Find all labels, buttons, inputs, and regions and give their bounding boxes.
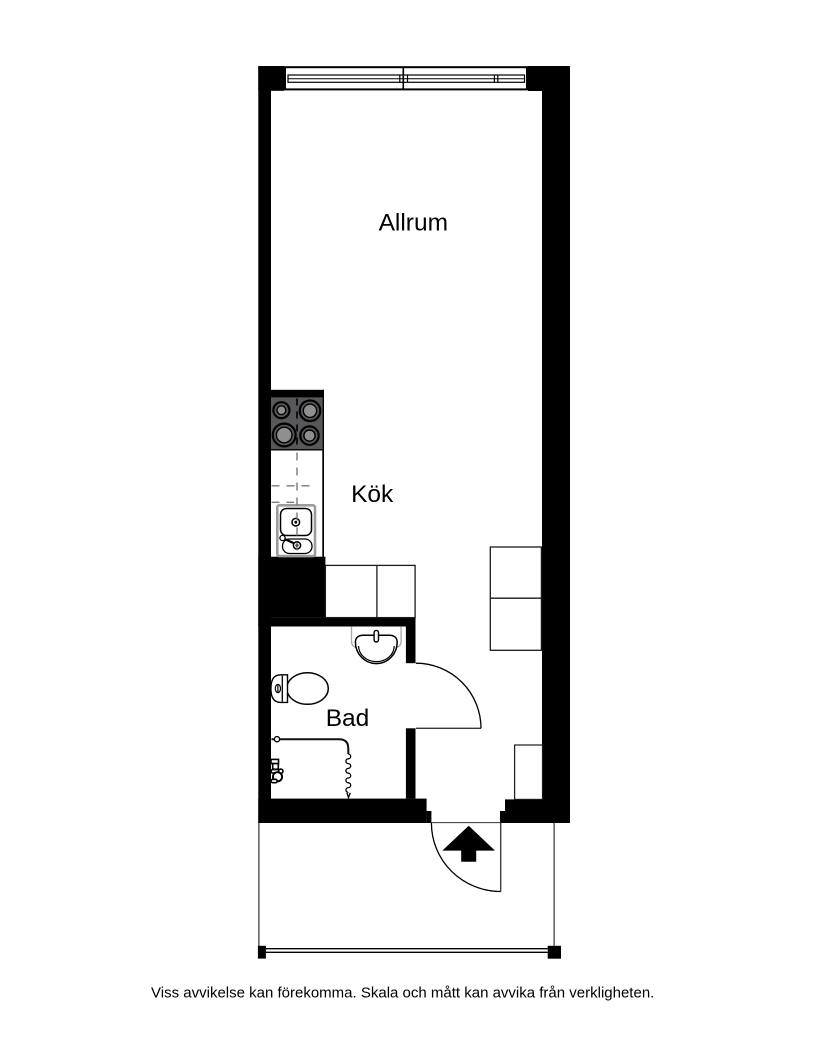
- svg-text:Viss avvikelse kan förekomma.: Viss avvikelse kan förekomma. Skala och …: [151, 985, 654, 1002]
- svg-text:Allrum: Allrum: [379, 210, 448, 237]
- svg-text:Kök: Kök: [351, 481, 394, 508]
- svg-text:Bad: Bad: [326, 705, 370, 732]
